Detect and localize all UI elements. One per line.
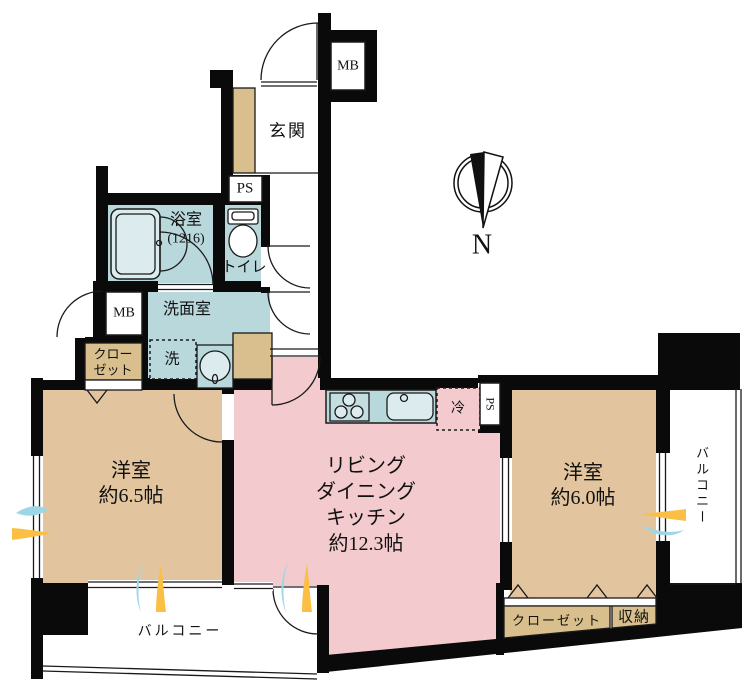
ldk-threshold (270, 349, 320, 356)
ldk-line3: キッチン (316, 505, 416, 531)
washroom-label: 洗面室 (163, 300, 211, 320)
washroom-door-arc (268, 292, 310, 334)
bedroom2-east-window (656, 453, 670, 541)
shoe-cabinet (233, 88, 255, 173)
stove-burner (343, 394, 355, 406)
toilet-door-arc (268, 246, 310, 288)
toilet-label: トイレ (221, 259, 266, 278)
entrance-label: 玄関 (269, 120, 307, 141)
laundry-label: 洗 (164, 351, 179, 370)
closet1-door-strip (85, 380, 142, 390)
closet-label: クローゼット (90, 346, 136, 377)
ldk-line1: リビング (316, 453, 416, 479)
balcony-label: バルコニー (138, 623, 223, 641)
bathroom-label: 浴室 (1216) (167, 210, 204, 248)
bedroom1-size: 約6.5帖 (99, 484, 164, 509)
bedroom1-door-gap (222, 394, 234, 440)
bedroom2-slider (500, 458, 512, 542)
fridge-label: 冷 (451, 400, 465, 418)
bedroom2-size: 約6.0帖 (551, 486, 616, 511)
entrance-door-arc (261, 23, 318, 80)
closet-label: クローゼット (512, 613, 602, 629)
ldk-size: 約12.3帖 (316, 531, 416, 557)
bedroom1-west-window (31, 456, 43, 578)
balcony-label: バルコニー (693, 446, 709, 526)
pipe-space-label: PS (237, 180, 254, 199)
bedroom2-label: 洋室 約6.0帖 (551, 461, 616, 511)
storage-label: 収納 (618, 609, 650, 628)
meter-box-label: MB (337, 57, 359, 75)
bathroom-size: (1216) (167, 230, 204, 248)
meter-box-label: MB (113, 304, 135, 322)
bedroom1-label: 洋室 約6.5帖 (99, 459, 164, 509)
kitchen-sink-icon (387, 393, 433, 420)
toilet-bowl-icon (229, 225, 257, 257)
compass-icon (454, 152, 512, 228)
stove-burner (335, 406, 347, 418)
sink-icon (200, 351, 230, 381)
south-balcony-edge (43, 666, 317, 679)
bedroom1-name: 洋室 (99, 459, 164, 484)
bathtub-icon (111, 209, 160, 279)
floor-plan: 玄関 MB MB PS PS 浴室 (1216) トイレ 洗面室 洗 クローゼッ… (0, 0, 750, 695)
closet2-door-strip (504, 598, 656, 606)
bathroom-name: 浴室 (167, 210, 204, 230)
ldk-line2: ダイニング (316, 479, 416, 505)
bedroom2-name: 洋室 (551, 461, 616, 486)
stove-burner (351, 406, 363, 418)
hall-shelf (233, 333, 272, 379)
entrance-threshold (261, 82, 317, 86)
pipe-space-label: PS (483, 397, 498, 410)
ldk-label: リビング ダイニング キッチン 約12.3帖 (316, 453, 416, 557)
north-label: N (472, 228, 492, 263)
